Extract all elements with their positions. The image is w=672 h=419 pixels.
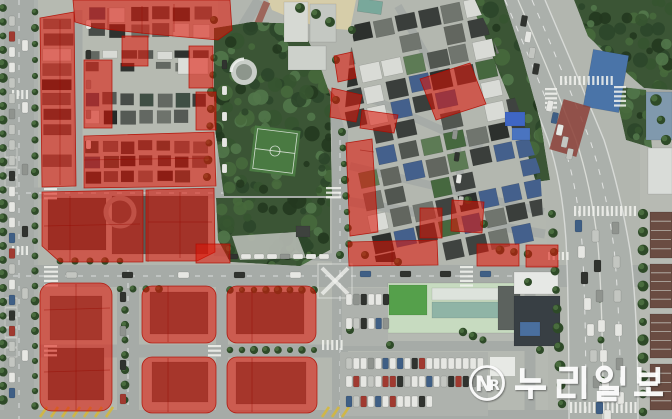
tree-canopy bbox=[614, 23, 626, 35]
car bbox=[440, 271, 451, 277]
crosswalk-stripe bbox=[340, 340, 342, 350]
tree-canopy bbox=[304, 126, 319, 141]
building bbox=[363, 84, 384, 104]
building bbox=[140, 110, 153, 123]
car bbox=[222, 164, 227, 173]
crosswalk bbox=[570, 402, 637, 413]
satellite-map-canvas: NR bbox=[0, 0, 672, 419]
car bbox=[575, 220, 582, 232]
car bbox=[383, 376, 389, 387]
building bbox=[398, 140, 419, 159]
car bbox=[441, 358, 447, 369]
car bbox=[9, 373, 15, 383]
highlight-zone bbox=[420, 208, 442, 238]
crosswalk-stripe bbox=[326, 192, 341, 194]
tree-canopy bbox=[633, 133, 640, 140]
crosswalk-stripe bbox=[574, 206, 576, 216]
car bbox=[361, 294, 367, 305]
street-tree-highlight bbox=[469, 332, 474, 337]
crosswalk-stripe bbox=[208, 345, 221, 347]
crosswalk-stripe bbox=[17, 90, 19, 99]
building bbox=[501, 183, 522, 203]
street-tree-highlight bbox=[639, 210, 645, 216]
car bbox=[178, 272, 189, 278]
building bbox=[389, 285, 427, 315]
car bbox=[361, 396, 367, 407]
car bbox=[353, 318, 359, 329]
tree-canopy bbox=[227, 226, 234, 233]
car bbox=[353, 358, 359, 369]
tree-canopy bbox=[649, 13, 656, 20]
building bbox=[403, 160, 425, 181]
car bbox=[587, 324, 594, 336]
car bbox=[412, 376, 418, 387]
crosswalk-stripe bbox=[583, 76, 585, 85]
building bbox=[514, 296, 560, 346]
car bbox=[280, 254, 290, 259]
street-tree-highlight bbox=[239, 347, 243, 351]
tree-canopy bbox=[216, 204, 228, 216]
car bbox=[383, 358, 389, 369]
building bbox=[157, 52, 172, 59]
tree-canopy bbox=[646, 48, 653, 55]
building bbox=[648, 148, 672, 194]
building bbox=[484, 101, 506, 122]
street-tree-highlight bbox=[0, 187, 4, 191]
car bbox=[9, 109, 15, 119]
street-tree-highlight bbox=[122, 307, 126, 311]
car bbox=[353, 396, 359, 407]
car bbox=[361, 318, 367, 329]
tree-canopy bbox=[661, 39, 672, 50]
crosswalk-stripe bbox=[629, 206, 631, 216]
crosswalk-stripe bbox=[614, 100, 626, 102]
car bbox=[596, 290, 603, 302]
car bbox=[426, 376, 432, 387]
apartment-building bbox=[650, 264, 672, 308]
tree-canopy bbox=[319, 153, 331, 165]
crosswalk-stripe bbox=[614, 95, 626, 97]
highlight-zone bbox=[526, 245, 558, 267]
tree-canopy bbox=[492, 24, 500, 32]
crosswalk-stripe bbox=[44, 280, 58, 282]
car bbox=[254, 254, 264, 259]
nr-logo-letter-r: R bbox=[489, 378, 500, 394]
tree-canopy bbox=[222, 102, 233, 113]
car bbox=[397, 358, 403, 369]
street-tree-highlight bbox=[312, 10, 318, 16]
tree-canopy bbox=[605, 46, 612, 53]
street-tree-highlight bbox=[553, 305, 558, 310]
crosswalk-stripe bbox=[634, 402, 636, 413]
crosswalk-stripe bbox=[578, 76, 580, 85]
building bbox=[390, 206, 412, 227]
highlight-zone bbox=[40, 12, 76, 187]
car bbox=[222, 138, 227, 147]
street-tree-highlight bbox=[638, 245, 644, 251]
building bbox=[505, 112, 525, 126]
crosswalk-stripe bbox=[606, 206, 608, 216]
car bbox=[590, 350, 597, 362]
car bbox=[368, 358, 374, 369]
crosswalk-stripe bbox=[44, 266, 58, 268]
crosswalk-stripe bbox=[545, 93, 557, 95]
car bbox=[600, 350, 607, 362]
car bbox=[584, 298, 591, 310]
building bbox=[472, 39, 495, 61]
car bbox=[346, 294, 352, 305]
street-tree-highlight bbox=[339, 129, 343, 133]
tree-canopy bbox=[259, 185, 268, 194]
tree-canopy bbox=[241, 108, 248, 115]
street-tree-highlight bbox=[639, 228, 645, 234]
tree-canopy bbox=[258, 110, 271, 123]
crosswalk-stripe bbox=[21, 246, 23, 255]
street-tree-highlight bbox=[122, 352, 126, 356]
street-tree-highlight bbox=[287, 347, 290, 350]
street-tree-highlight bbox=[32, 193, 36, 197]
car bbox=[9, 94, 15, 104]
car bbox=[383, 294, 389, 305]
car bbox=[9, 388, 15, 398]
crosswalk-stripe bbox=[460, 271, 473, 273]
street-tree-highlight bbox=[341, 161, 344, 164]
car bbox=[383, 318, 389, 329]
street-tree-highlight bbox=[32, 358, 35, 361]
car bbox=[463, 358, 469, 369]
car bbox=[222, 86, 227, 95]
car bbox=[86, 50, 91, 59]
car bbox=[9, 326, 15, 336]
street-tree-highlight bbox=[0, 19, 4, 23]
car bbox=[9, 202, 15, 212]
car bbox=[400, 271, 411, 277]
car bbox=[267, 254, 277, 259]
highlight-zone bbox=[227, 286, 316, 343]
crosswalk-stripe bbox=[584, 402, 586, 413]
street-tree-highlight bbox=[549, 229, 554, 234]
car bbox=[375, 396, 381, 407]
street-tree-highlight bbox=[263, 347, 267, 351]
tree-canopy bbox=[231, 143, 242, 154]
street-tree-highlight bbox=[651, 95, 657, 101]
street-tree-highlight bbox=[32, 9, 36, 13]
street-tree-highlight bbox=[638, 353, 644, 359]
highlight-zone bbox=[346, 139, 378, 236]
car bbox=[613, 256, 620, 268]
crosswalk-stripe bbox=[620, 206, 622, 216]
street-tree-highlight bbox=[251, 347, 255, 351]
tree-canopy bbox=[318, 165, 325, 172]
street-tree-highlight bbox=[32, 137, 36, 141]
car bbox=[615, 324, 622, 336]
car bbox=[390, 358, 396, 369]
building bbox=[156, 62, 171, 69]
car bbox=[9, 125, 15, 135]
street-tree-highlight bbox=[32, 388, 35, 391]
crosswalk-stripe bbox=[615, 206, 617, 216]
crosswalk-stripe bbox=[601, 76, 603, 85]
highlight-zone bbox=[142, 286, 216, 343]
street-tree-highlight bbox=[32, 208, 36, 212]
street-tree-highlight bbox=[32, 223, 36, 227]
car bbox=[390, 376, 396, 387]
street-tree-highlight bbox=[31, 168, 36, 173]
car bbox=[412, 358, 418, 369]
tree-canopy bbox=[272, 179, 282, 189]
highlight-zone bbox=[84, 60, 112, 128]
street-tree-highlight bbox=[32, 89, 36, 93]
tree-canopy bbox=[261, 68, 274, 81]
crosswalk-stripe bbox=[566, 252, 568, 260]
tree-canopy bbox=[236, 157, 248, 169]
tree-canopy bbox=[235, 115, 246, 126]
tree-canopy bbox=[217, 231, 230, 244]
car bbox=[9, 140, 15, 150]
tree-canopy bbox=[599, 12, 611, 24]
crosswalk-stripe bbox=[560, 76, 562, 85]
tree-canopy bbox=[652, 22, 665, 35]
street-tree-highlight bbox=[549, 211, 553, 215]
crosswalk-stripe bbox=[26, 90, 28, 99]
building bbox=[103, 50, 118, 58]
tree-canopy bbox=[591, 5, 597, 11]
street-tree-highlight bbox=[121, 321, 126, 326]
street-tree-highlight bbox=[639, 408, 644, 413]
car bbox=[592, 230, 599, 242]
car bbox=[368, 376, 374, 387]
tree-canopy bbox=[622, 13, 633, 24]
street-tree-highlight bbox=[553, 287, 557, 291]
street-tree-highlight bbox=[387, 342, 391, 346]
crosswalk-stripe bbox=[460, 275, 473, 277]
street-tree-highlight bbox=[345, 225, 349, 229]
street-tree-highlight bbox=[459, 328, 464, 333]
street-tree-highlight bbox=[0, 33, 4, 37]
tree-canopy bbox=[243, 220, 256, 233]
car bbox=[456, 376, 462, 387]
tree-canopy bbox=[248, 43, 255, 50]
car bbox=[222, 60, 227, 69]
crosswalk-stripe bbox=[570, 402, 572, 413]
car bbox=[397, 396, 403, 407]
building bbox=[442, 239, 464, 260]
crosswalk-stripe bbox=[606, 76, 608, 85]
crosswalk-stripe bbox=[579, 402, 581, 413]
street-tree-highlight bbox=[344, 209, 347, 212]
car bbox=[222, 112, 227, 121]
street-tree-highlight bbox=[227, 347, 231, 351]
car bbox=[383, 396, 389, 407]
tree-canopy bbox=[243, 213, 251, 221]
car bbox=[448, 376, 454, 387]
building bbox=[514, 272, 558, 294]
street-tree-highlight bbox=[340, 145, 344, 149]
street-tree-highlight bbox=[0, 327, 4, 331]
car bbox=[452, 130, 458, 140]
crosswalk-stripe bbox=[17, 246, 19, 255]
car bbox=[353, 294, 359, 305]
car bbox=[9, 171, 15, 181]
crosswalk-stripe bbox=[614, 86, 626, 88]
street-tree-highlight bbox=[32, 283, 36, 287]
building bbox=[512, 128, 530, 140]
street-tree-highlight bbox=[32, 25, 36, 29]
building bbox=[520, 322, 540, 336]
car bbox=[376, 294, 382, 305]
street-tree-highlight bbox=[32, 268, 36, 272]
street-tree-highlight bbox=[32, 73, 35, 76]
tree-canopy bbox=[223, 182, 235, 194]
tree-canopy bbox=[225, 36, 237, 48]
car bbox=[9, 357, 15, 367]
street-tree-highlight bbox=[341, 176, 346, 181]
car bbox=[578, 246, 585, 258]
car bbox=[375, 358, 381, 369]
highlight-zone bbox=[477, 244, 519, 266]
crosswalk-stripe bbox=[593, 402, 595, 413]
car bbox=[346, 376, 352, 387]
tree-canopy bbox=[633, 53, 648, 68]
car bbox=[419, 396, 425, 407]
crosswalk-stripe bbox=[611, 402, 613, 413]
car bbox=[361, 376, 367, 387]
tree-canopy bbox=[299, 85, 314, 100]
street-tree-highlight bbox=[32, 328, 36, 332]
crosswalk-stripe bbox=[625, 206, 627, 216]
car bbox=[234, 272, 245, 278]
car bbox=[9, 156, 15, 166]
car bbox=[120, 326, 126, 336]
street-tree-highlight bbox=[121, 381, 126, 386]
crosswalk-stripe bbox=[44, 275, 58, 277]
crosswalk-stripe bbox=[625, 402, 627, 413]
building bbox=[425, 156, 448, 178]
street-tree-highlight bbox=[525, 279, 529, 283]
crosswalk-stripe bbox=[327, 340, 329, 350]
tree-canopy bbox=[656, 53, 669, 66]
crosswalk-stripe bbox=[592, 76, 594, 85]
street-tree-highlight bbox=[32, 403, 36, 407]
tree-canopy bbox=[587, 20, 594, 27]
building bbox=[493, 142, 515, 162]
building bbox=[444, 23, 466, 45]
highlight-zone bbox=[227, 357, 317, 413]
car bbox=[9, 295, 15, 305]
crosswalk-stripe bbox=[21, 90, 23, 99]
highlight-zone bbox=[142, 357, 216, 413]
car bbox=[9, 47, 15, 57]
tree-canopy bbox=[300, 208, 306, 214]
car bbox=[376, 318, 382, 329]
crosswalk-stripe bbox=[588, 402, 590, 413]
street-tree-highlight bbox=[32, 343, 35, 346]
car bbox=[9, 63, 15, 73]
building bbox=[175, 51, 190, 58]
crosswalk-stripe bbox=[326, 187, 341, 189]
tree-canopy bbox=[235, 84, 246, 95]
car bbox=[426, 358, 432, 369]
car bbox=[9, 218, 15, 228]
tree-canopy bbox=[635, 14, 648, 27]
tree-canopy bbox=[236, 180, 244, 188]
crosswalk-stripe bbox=[588, 76, 590, 85]
highlight-zone bbox=[189, 46, 213, 88]
crosswalk-stripe bbox=[336, 340, 338, 350]
car bbox=[612, 222, 619, 234]
car bbox=[353, 376, 359, 387]
building bbox=[157, 111, 171, 124]
car bbox=[456, 358, 462, 369]
crosswalk-stripe bbox=[597, 206, 599, 216]
car bbox=[390, 396, 396, 407]
car bbox=[419, 358, 425, 369]
building bbox=[176, 93, 190, 107]
car bbox=[346, 396, 352, 407]
highlight-zone bbox=[196, 244, 230, 263]
car bbox=[397, 376, 403, 387]
car bbox=[9, 249, 15, 259]
car bbox=[9, 311, 15, 321]
street-tree-highlight bbox=[0, 89, 4, 93]
street-tree-highlight bbox=[0, 313, 4, 317]
street-tree-highlight bbox=[657, 116, 662, 121]
car bbox=[404, 358, 410, 369]
car bbox=[120, 394, 126, 404]
crosswalk-stripe bbox=[592, 206, 594, 216]
crosswalk-stripe bbox=[460, 266, 473, 268]
street-tree-highlight bbox=[117, 286, 120, 289]
car bbox=[66, 272, 77, 278]
car bbox=[594, 260, 601, 272]
car bbox=[9, 342, 15, 352]
street-tree-highlight bbox=[639, 264, 644, 269]
street-tree-highlight bbox=[32, 41, 35, 44]
street-tree-highlight bbox=[662, 136, 668, 142]
crosswalk-stripe bbox=[579, 206, 581, 216]
street-tree-highlight bbox=[480, 337, 484, 341]
building bbox=[288, 46, 326, 70]
building bbox=[380, 166, 401, 186]
car bbox=[22, 226, 28, 237]
crosswalk-stripe bbox=[460, 284, 473, 286]
car bbox=[581, 272, 588, 284]
car bbox=[360, 271, 371, 277]
car bbox=[9, 280, 15, 290]
car bbox=[419, 376, 425, 387]
car bbox=[346, 358, 352, 369]
highlight-zone bbox=[196, 92, 216, 130]
car bbox=[9, 78, 15, 88]
crosswalk-stripe bbox=[614, 91, 626, 93]
tree-canopy bbox=[499, 14, 508, 23]
tree-canopy bbox=[482, 1, 499, 18]
car bbox=[441, 376, 447, 387]
car bbox=[404, 376, 410, 387]
street-tree-highlight bbox=[343, 193, 347, 197]
car bbox=[412, 396, 418, 407]
car bbox=[306, 254, 316, 259]
aerial-news-photo: NR 누리일보 bbox=[0, 0, 672, 419]
car bbox=[456, 174, 462, 184]
tree-canopy bbox=[307, 113, 315, 121]
crosswalk-stripe bbox=[44, 271, 58, 273]
crosswalk bbox=[326, 187, 341, 198]
building bbox=[376, 144, 398, 165]
car bbox=[9, 32, 15, 42]
tree-canopy bbox=[316, 187, 322, 193]
street-tree-highlight bbox=[31, 297, 36, 302]
